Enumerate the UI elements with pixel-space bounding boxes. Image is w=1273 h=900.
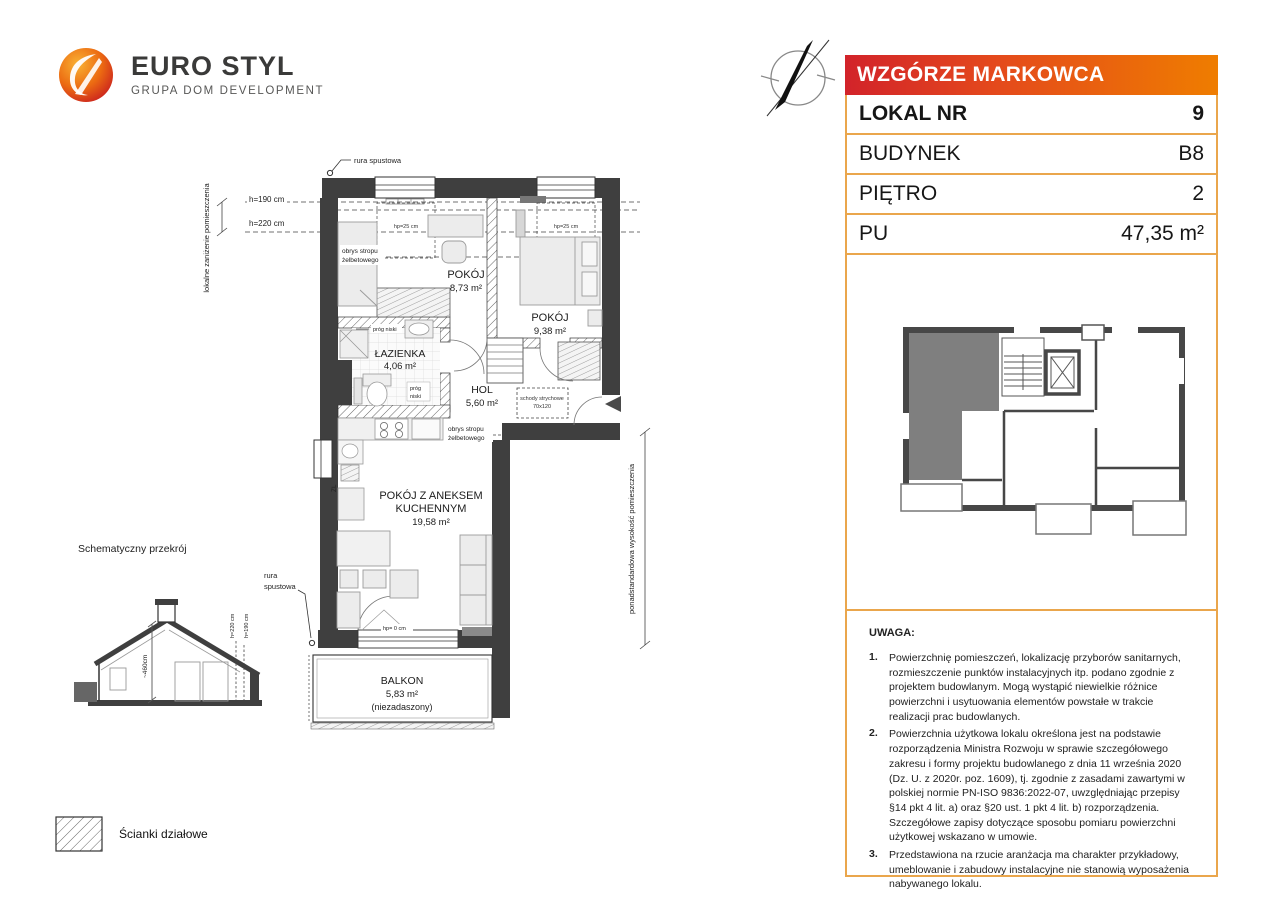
living-name: POKÓJ Z ANEKSEM: [379, 489, 482, 502]
hp25-label: hp=25 cm: [394, 224, 419, 230]
section-title: Schematyczny przekrój: [78, 543, 187, 555]
wardrobe: [558, 342, 600, 380]
bath-name: ŁAZIENKA: [375, 348, 426, 360]
eurostyl-logo: EURO STYL GRUPA DOM DEVELOPMENT: [55, 42, 345, 108]
room-height-dimension: [640, 428, 650, 649]
balcony-name: BALKON: [381, 675, 424, 687]
unit-info-panel: WZGÓRZE MARKOWCA LOKAL NR 9 BUDYNEK B8 P…: [845, 55, 1218, 877]
row-value: 47,35 m²: [1121, 222, 1204, 246]
living-area: 19,58 m²: [412, 517, 450, 528]
wardrobe: [377, 288, 450, 317]
room-height-label: ponadstandardowa wysokość pomieszczenia: [627, 463, 636, 614]
hp25-label: hp=25 cm: [554, 224, 579, 230]
note-item: 2. Powierzchnia użytkowa lokalu określon…: [869, 727, 1196, 845]
balcony-note: (niezadaszony): [371, 702, 432, 712]
entrance-arrow: [605, 396, 621, 412]
building-key-plan: [847, 255, 1216, 611]
north-compass-icon: [755, 36, 843, 124]
hall-name: HOL: [471, 384, 493, 396]
downpipe-label-top: rura spustowa: [354, 156, 402, 165]
threshold-label: próg: [410, 386, 421, 392]
room2-area: 9,38 m²: [534, 326, 566, 337]
development-name: WZGÓRZE MARKOWCA: [845, 55, 1218, 95]
row-pietro: PIĘTRO 2: [847, 175, 1216, 215]
partition-hatch-icon: [55, 816, 103, 852]
hall-area: 5,60 m²: [466, 398, 498, 409]
row-value: B8: [1178, 142, 1204, 166]
building-key-plan-drawing: [847, 255, 1216, 611]
note-item: 3. Przedstawiona na rzucie aranżacja ma …: [869, 848, 1196, 892]
note-item: 1. Powierzchnię pomieszczeń, lokalizację…: [869, 651, 1196, 724]
row-label: PU: [859, 222, 888, 246]
row-label: BUDYNEK: [859, 142, 961, 166]
legend-label: Ścianki działowe: [119, 827, 208, 841]
threshold-label: próg niski: [373, 327, 397, 333]
h220-label: h=220 cm: [249, 219, 285, 228]
window: [375, 177, 435, 204]
window: [314, 440, 332, 478]
notes-box: UWAGA: 1. Powierzchnię pomieszczeń, loka…: [847, 611, 1216, 875]
attic-stairs-label: 70x120: [533, 404, 551, 410]
attic-stairs-label: schody strychowe: [520, 396, 564, 402]
section-h190-label: h=190 cm: [244, 613, 250, 638]
eurostyl-logo-icon: [55, 44, 117, 106]
section-h220-label: h=220 cm: [230, 613, 236, 638]
notes-title: UWAGA:: [869, 627, 1196, 639]
row-pu: PU 47,35 m²: [847, 215, 1216, 255]
slab-outline-label: obrys stropu: [342, 248, 378, 255]
logo-title: EURO STYL: [131, 53, 324, 80]
room1-name: POKÓJ: [447, 268, 484, 281]
balcony-area: 5,83 m²: [386, 689, 418, 700]
row-label: LOKAL NR: [859, 102, 967, 126]
legend-partition-walls: Ścianki działowe: [55, 816, 208, 852]
cabinet: [487, 338, 523, 383]
row-budynek: BUDYNEK B8: [847, 135, 1216, 175]
row-lokal-nr: LOKAL NR 9: [847, 95, 1216, 135]
room1-area: 8,73 m²: [450, 283, 482, 294]
row-value: 9: [1192, 102, 1204, 126]
slab-outline-label: żelbetowego: [448, 435, 485, 442]
living-name: KUCHENNYM: [396, 503, 467, 515]
furniture-living: [337, 531, 492, 636]
row-value: 2: [1192, 182, 1204, 206]
logo-subtitle: GRUPA DOM DEVELOPMENT: [131, 85, 324, 97]
lowered-ceiling-label: lokalne zaniżenie pomieszczenia: [202, 183, 211, 293]
lowered-ceiling-dimension: [217, 198, 227, 236]
slab-outline-label: żelbetowego: [342, 257, 379, 264]
zl-label: ZL: [331, 484, 338, 492]
hp0-label: hp= 0 cm: [383, 626, 406, 632]
slab-outline-label: obrys stropu: [448, 426, 484, 433]
h190-label: h=190 cm: [249, 195, 285, 204]
room2-name: POKÓJ: [531, 311, 568, 324]
row-label: PIĘTRO: [859, 182, 937, 206]
section-height-label: ~460cm: [142, 655, 149, 678]
floor-plan-sheet: EURO STYL GRUPA DOM DEVELOPMENT WZGÓRZE …: [0, 0, 1273, 900]
bath-area: 4,06 m²: [384, 361, 416, 372]
schematic-cross-section: Schematyczny przekrój ~460cm h=220 cm h=…: [70, 540, 320, 740]
threshold-label: niski: [410, 394, 421, 400]
